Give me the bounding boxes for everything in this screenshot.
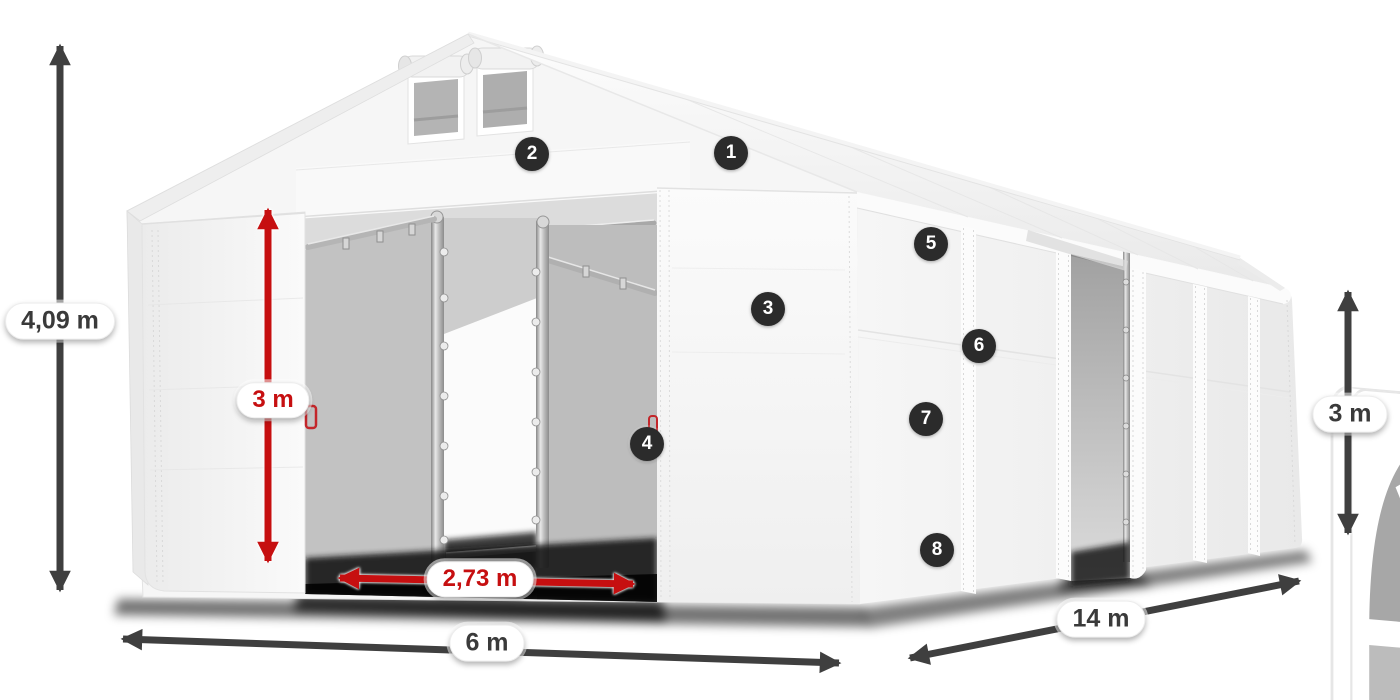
dimension-label-entrance-height: 3 m [236,382,309,418]
callout-badge-2[interactable]: 2 [515,137,549,171]
dimension-label-total-height: 4,09 m [5,303,115,340]
front-right-wall [649,187,860,604]
side-window-2 [1351,388,1400,700]
product-dimension-diagram: 4,09 m 3 m 2,73 m 6 m 14 m 3 m 1 2 3 4 5… [0,0,1400,700]
callout-badge-1[interactable]: 1 [714,136,748,170]
callout-badge-7[interactable]: 7 [909,402,943,436]
dimension-label-side-wall-height: 3 m [1312,396,1387,433]
tent-illustration [0,0,1400,700]
callout-badge-6[interactable]: 6 [962,329,996,363]
callout-badge-8[interactable]: 8 [920,533,954,567]
dimension-label-entrance-width: 2,73 m [427,561,534,597]
callout-badge-4[interactable]: 4 [630,427,664,461]
callout-badge-3[interactable]: 3 [751,292,785,326]
dimension-label-tent-width: 6 m [449,625,524,662]
side-open-section [1071,233,1130,586]
dimension-label-tent-length: 14 m [1057,601,1146,638]
callout-badge-5[interactable]: 5 [914,227,948,261]
